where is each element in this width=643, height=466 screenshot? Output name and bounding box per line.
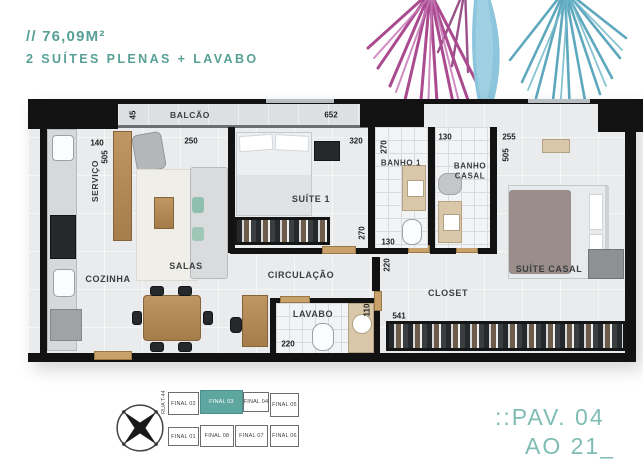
dim-circulacao-width: 220 xyxy=(383,258,392,271)
keyplan-unit-final-02: FINAL 02 xyxy=(168,392,199,415)
dining-table xyxy=(143,295,201,341)
suite1-door xyxy=(322,246,356,254)
keyplan-unit-label: FINAL 01 xyxy=(171,434,196,440)
dim-suite-casal-depth: 505 xyxy=(502,148,511,161)
label-closet: CLOSET xyxy=(428,288,468,298)
dim-lavabo-depth: 110 xyxy=(363,304,372,317)
kitchen-sink xyxy=(53,269,75,297)
sofa-pillow-2 xyxy=(192,227,204,241)
header: // 76,09M² 2 SUÍTES PLENAS + LAVABO xyxy=(26,28,259,66)
balcony-sliding-glass xyxy=(118,125,368,128)
keyplan-unit-final-03: FINAL 03 xyxy=(200,390,243,414)
dim-servico-width: 140 xyxy=(90,139,103,148)
label-banho-casal: BANHO CASAL xyxy=(450,161,490,180)
label-salas: SALAS xyxy=(169,261,203,271)
keyplan-unit-label: FINAL 02 xyxy=(171,401,196,407)
suite-casal-dresser xyxy=(542,139,570,153)
dim-sala-width: 250 xyxy=(184,137,197,146)
pavement-label: ::PAV. 04 xyxy=(495,404,615,431)
banho-casal-sink-counter xyxy=(438,201,462,243)
dim-banho1-width: 130 xyxy=(381,238,394,247)
banho1-toilet xyxy=(402,219,422,245)
keyplan-unit-final-04: FINAL 04 xyxy=(243,392,269,412)
suite1-desk xyxy=(314,141,340,161)
dim-closet-length: 541 xyxy=(392,312,405,321)
desk xyxy=(242,295,268,347)
label-circulacao: CIRCULAÇÃO xyxy=(268,270,335,280)
dim-banho-casal-width: 130 xyxy=(438,133,451,142)
suite1-window xyxy=(266,99,334,103)
dim-suite1-width: 320 xyxy=(349,137,362,146)
label-balcao: BALCÃO xyxy=(170,110,210,120)
dim-banho1-depth: 270 xyxy=(380,140,389,153)
label-lavabo: LAVABO xyxy=(293,309,333,319)
keyplan-unit-final-01: FINAL 01 xyxy=(168,427,199,446)
keyplan-unit-final-08: FINAL 08 xyxy=(200,425,234,447)
keyplan-unit-label: FINAL 06 xyxy=(272,433,297,439)
pavement-info: ::PAV. 04 AO 21_ xyxy=(495,404,615,460)
keyplan-unit-label: FINAL 03 xyxy=(209,399,234,405)
label-servico: SERVIÇO xyxy=(90,160,100,202)
plan-subtitle: 2 SUÍTES PLENAS + LAVABO xyxy=(26,52,259,66)
dim-balcao-depth: 45 xyxy=(129,111,138,120)
keyplan-unit-final-07: FINAL 07 xyxy=(235,425,268,447)
suite1-closet xyxy=(234,217,330,245)
entry-door xyxy=(94,351,132,360)
closet-wardrobe xyxy=(386,321,626,351)
dim-servico-depth: 505 xyxy=(101,150,110,163)
compass-icon xyxy=(114,402,166,454)
desk-chair xyxy=(230,317,242,333)
area-title: // 76,09M² xyxy=(26,28,259,45)
cooktop xyxy=(50,215,76,259)
label-suite1: SUÍTE 1 xyxy=(292,194,330,204)
fridge xyxy=(52,135,74,161)
keyplan-unit-final-05: FINAL 05 xyxy=(270,393,299,417)
street-label: RUA T-44 xyxy=(161,404,167,414)
suite-casal-cabinet xyxy=(588,249,624,279)
sofa-pillow xyxy=(192,197,204,213)
keyplan-unit-final-06: FINAL 06 xyxy=(270,425,299,447)
suite-casal-door xyxy=(374,291,382,311)
keyplan-unit-label: FINAL 07 xyxy=(239,433,264,439)
dim-suite1-depth: 270 xyxy=(358,226,367,239)
label-suite-casal: SUÍTE CASAL xyxy=(516,264,583,274)
lavabo-door xyxy=(280,296,310,303)
kitchen-cart xyxy=(50,309,82,341)
armchair xyxy=(131,131,167,174)
floor-plan: BALCÃO SERVIÇO COZINHA SALAS CIRCULAÇÃO … xyxy=(28,99,636,362)
lavabo-toilet xyxy=(312,323,334,351)
keyplan: RUA T-44 FINAL 02 FINAL 03 FINAL 04 FINA… xyxy=(112,388,312,460)
label-cozinha: COZINHA xyxy=(85,274,130,284)
tv-panel xyxy=(113,131,132,241)
label-banho1: BANHO 1 xyxy=(381,159,421,168)
pavement-range: AO 21_ xyxy=(525,433,615,460)
keyplan-unit-label: FINAL 05 xyxy=(272,402,297,408)
dim-lavabo-width: 220 xyxy=(281,340,294,349)
suite-casal-window xyxy=(528,99,590,103)
dim-suite-casal-width: 255 xyxy=(502,133,515,142)
dim-balcao-length: 652 xyxy=(324,111,337,120)
banho1-sink-counter xyxy=(402,165,426,211)
floorplan-page: // 76,09M² 2 SUÍTES PLENAS + LAVABO xyxy=(0,0,643,466)
keyplan-unit-label: FINAL 08 xyxy=(205,433,230,439)
keyplan-unit-label: FINAL 04 xyxy=(244,399,269,405)
coffee-table xyxy=(154,197,174,229)
